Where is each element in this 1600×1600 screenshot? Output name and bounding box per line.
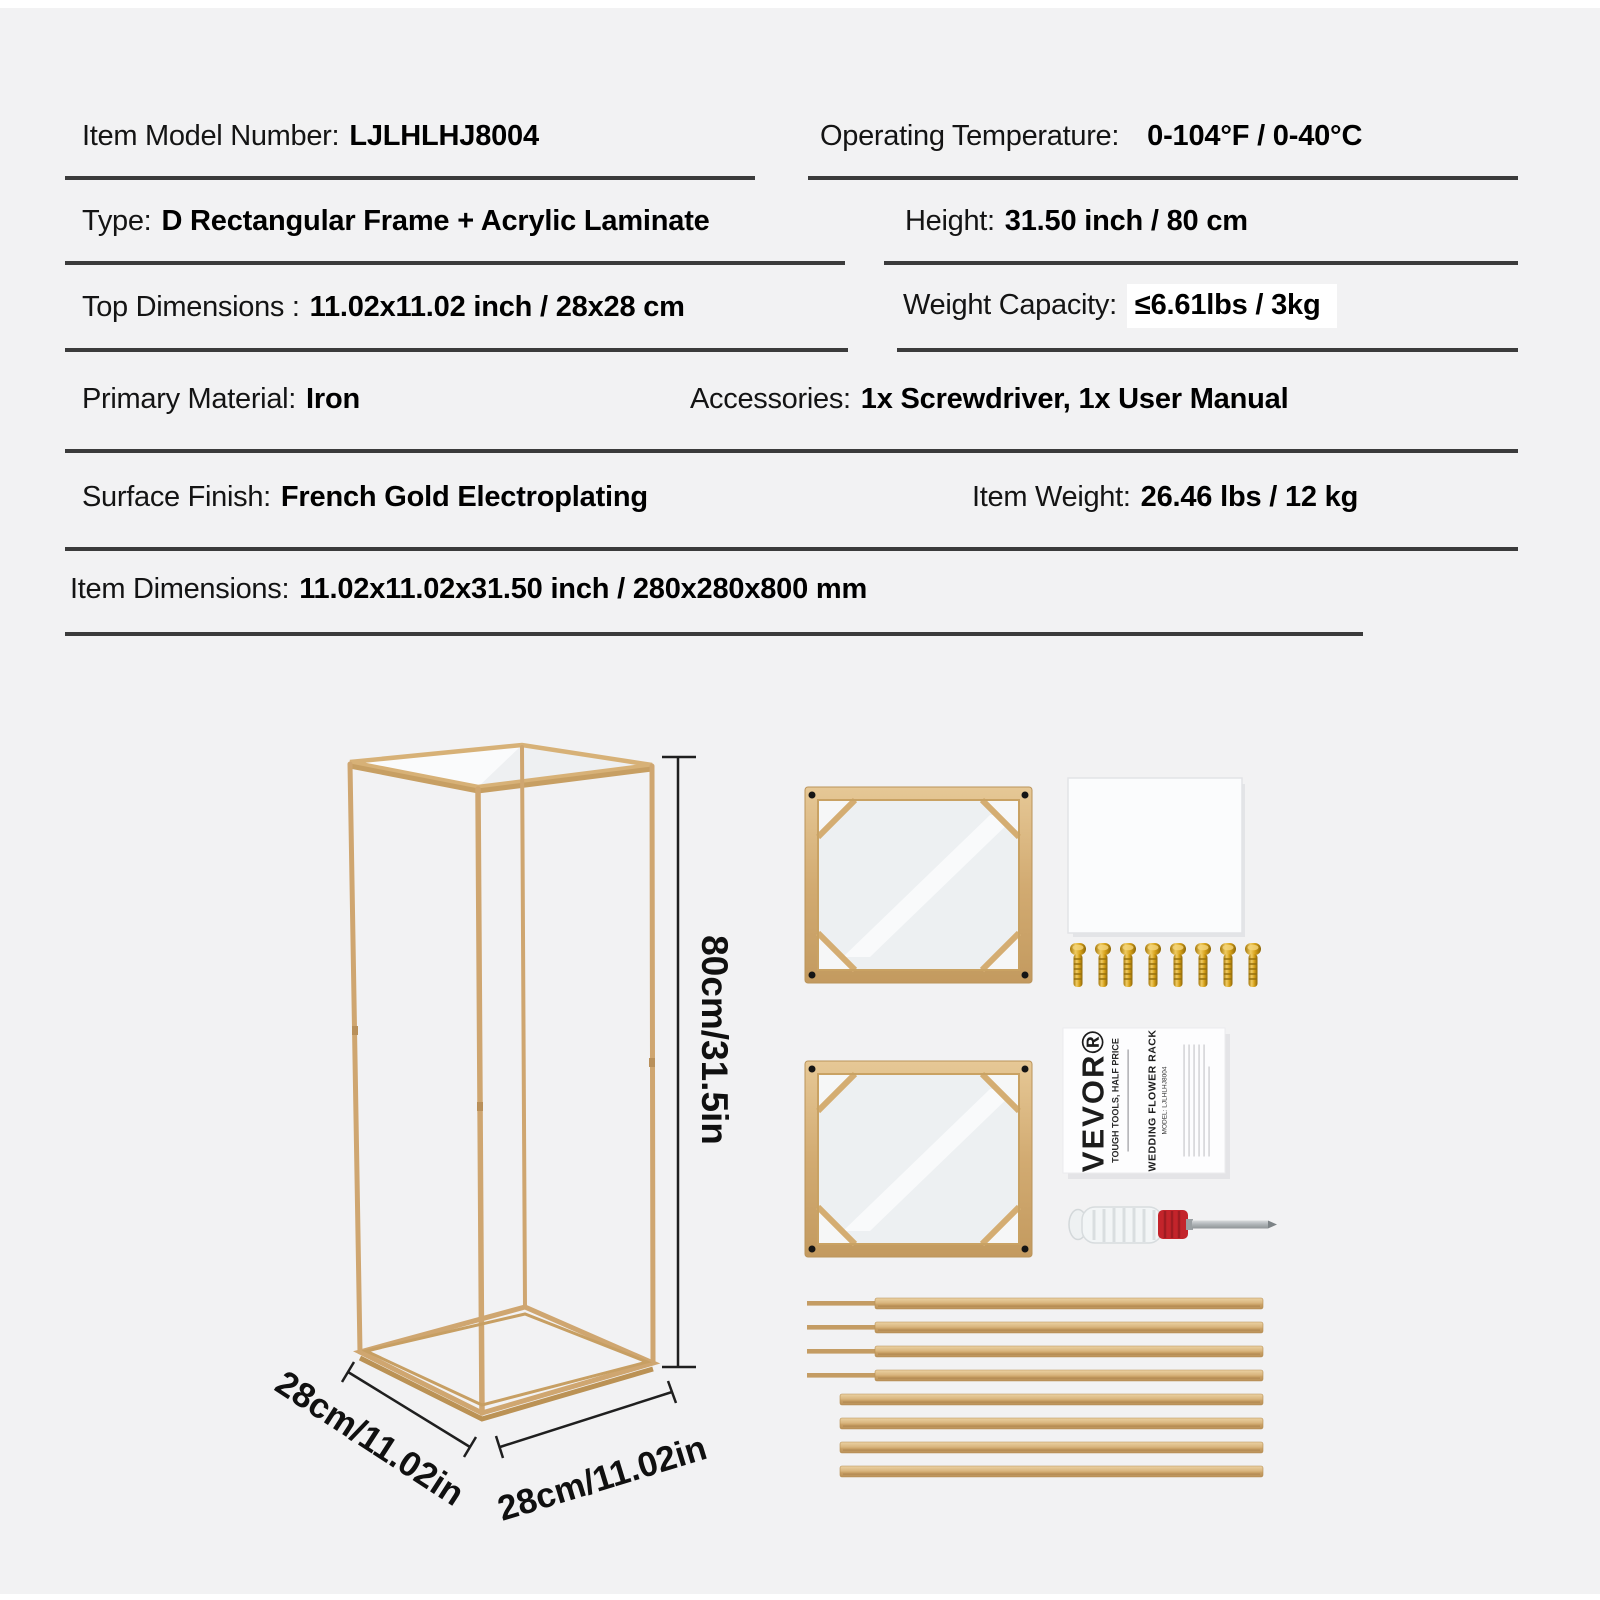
- leg-joint: [352, 1026, 358, 1035]
- screw-icon: [1120, 943, 1136, 987]
- stand-base-inner: [366, 1314, 647, 1405]
- product-illustration: 80cm/31.5in 28cm/11.02in 28cm/11.02in: [0, 0, 1600, 1600]
- support-rods: [807, 1298, 1263, 1477]
- rod: [840, 1418, 1263, 1429]
- product-spec-sheet: Item Model Number:LJLHLHJ8004 Operating …: [0, 0, 1600, 1600]
- manual-fine-print-line: [1128, 1050, 1129, 1152]
- manual-title-text: WEDDING FLOWER RACK: [1147, 1030, 1159, 1172]
- rod: [840, 1394, 1263, 1405]
- rod: [840, 1442, 1263, 1453]
- manual-model-text: MODEL: LJLHLHJ8004: [1162, 1066, 1169, 1134]
- screw-icon: [1145, 943, 1161, 987]
- screwdriver: [1069, 1207, 1277, 1243]
- base-right-dimension-label: 28cm/11.02in: [493, 1428, 711, 1528]
- leg-joint: [477, 1102, 483, 1111]
- rod: [807, 1346, 1263, 1357]
- leg-joint: [649, 1058, 655, 1067]
- manual-brand-text: VEVOR®: [1076, 1029, 1111, 1172]
- rod: [807, 1370, 1263, 1381]
- frame-panel-top: [805, 787, 1032, 983]
- screws-row: [1070, 943, 1261, 987]
- screw-icon: [1170, 943, 1186, 987]
- height-dimension-label: 80cm/31.5in: [694, 935, 735, 1145]
- screw-icon: [1070, 943, 1086, 987]
- screw-icon: [1245, 943, 1261, 987]
- stand-leg-back: [522, 747, 525, 1307]
- stand-leg-left: [350, 764, 360, 1352]
- acrylic-panel: [1068, 778, 1245, 937]
- pedestal-stand: [350, 745, 655, 1419]
- screwdriver-tip: [1268, 1221, 1277, 1229]
- rod: [807, 1322, 1263, 1333]
- frame-panel-bottom: [805, 1061, 1032, 1257]
- height-dimension: [662, 757, 696, 1367]
- dimension-tick: [464, 1437, 476, 1457]
- screw-icon: [1195, 943, 1211, 987]
- user-manual: VEVOR® TOUGH TOOLS, HALF PRICE WEDDING F…: [1063, 1028, 1230, 1179]
- screwdriver-shaft: [1192, 1221, 1268, 1229]
- screw-icon: [1095, 943, 1111, 987]
- manual-tagline-text: TOUGH TOOLS, HALF PRICE: [1111, 1038, 1121, 1163]
- dimension-tick: [342, 1362, 354, 1382]
- screw-icon: [1220, 943, 1236, 987]
- rod: [807, 1298, 1263, 1309]
- rod: [840, 1466, 1263, 1477]
